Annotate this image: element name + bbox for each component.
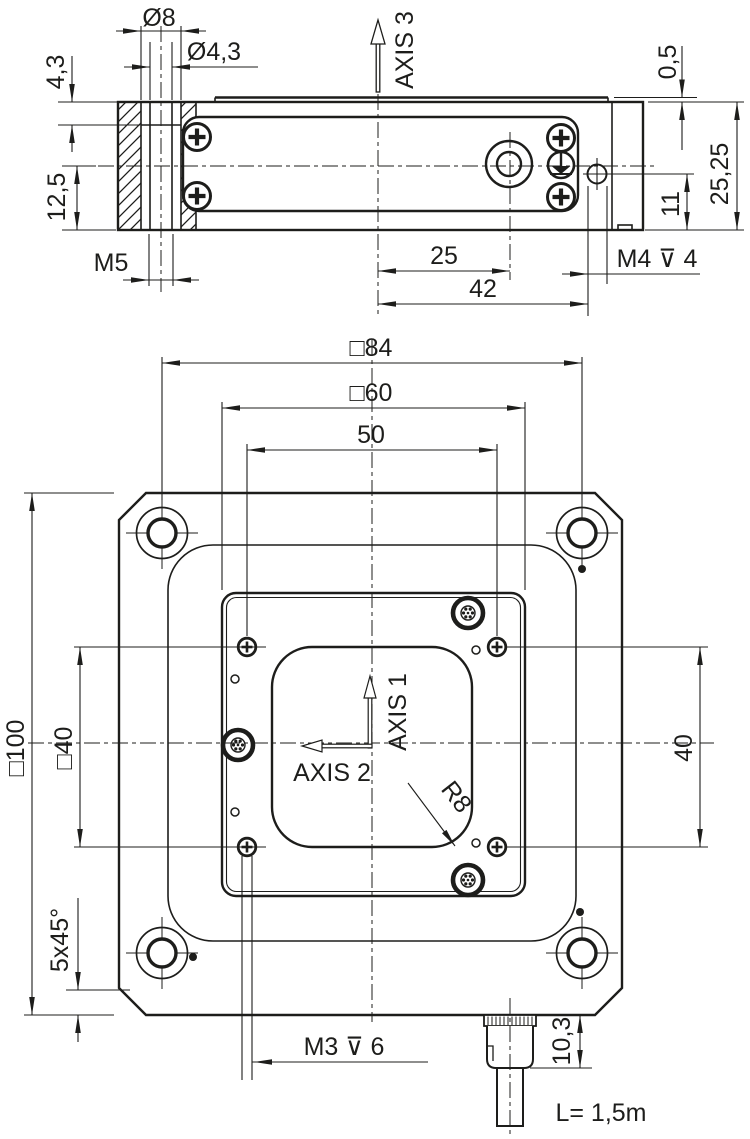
pin-dot	[576, 908, 584, 916]
pin-hole	[231, 808, 239, 816]
pin-hole	[472, 646, 480, 654]
pin-hole	[231, 675, 239, 683]
dim-label-h2525: 25,25	[706, 143, 734, 206]
dim-label-40: 40	[670, 734, 698, 762]
dim-label-m4: M4 ⊽ 4	[617, 245, 698, 273]
axis2-label: AXIS 2	[293, 759, 371, 787]
dim-label-sq60: □60	[350, 379, 393, 407]
drawing-page: AXIS 3 Ø8 Ø4,3 4,3	[0, 0, 750, 1139]
axis3-label: AXIS 3	[391, 11, 419, 89]
screw-torx	[453, 865, 483, 895]
dim-label-sq40: □40	[50, 727, 78, 770]
engineering-drawing: AXIS 3 Ø8 Ø4,3 4,3	[0, 0, 750, 1139]
screw-m3	[488, 838, 506, 856]
dim-label-depth43: 4,3	[42, 55, 70, 90]
screw-m3	[488, 638, 506, 656]
dim-label-chamfer: 5x45°	[46, 908, 74, 972]
screw-phillips	[184, 124, 211, 151]
dim-label-h103: 10,3	[548, 1017, 576, 1066]
pin-dot	[189, 953, 197, 961]
dim-label-42: 42	[469, 275, 497, 303]
screw-torx	[453, 598, 483, 628]
screw-phillips	[184, 183, 211, 210]
pin-hole	[472, 839, 480, 847]
dim-label-m3: M3 ⊽ 6	[304, 1033, 385, 1061]
screw-phillips	[548, 184, 575, 211]
screw-phillips	[548, 125, 575, 152]
screw-torx	[223, 730, 253, 760]
dim-label-off11: 11	[657, 191, 685, 217]
cable-length-label: L= 1,5m	[555, 1099, 646, 1127]
dim-label-sq100: □100	[2, 720, 30, 777]
axis1-label: AXIS 1	[384, 673, 412, 751]
pin-dot	[578, 565, 586, 573]
dim-label-sq84: □84	[350, 334, 393, 362]
dim-label-dia8: Ø8	[142, 4, 175, 32]
dim-label-h125: 12,5	[43, 173, 71, 222]
countersink-symbol	[548, 152, 574, 178]
dim-label-25: 25	[430, 242, 458, 270]
center-bore-inner	[497, 152, 521, 176]
dim-label-dia43: Ø4,3	[187, 38, 241, 66]
dim-label-50: 50	[357, 421, 385, 449]
dim-label-m5: M5	[94, 249, 129, 277]
dim-label-step05: 0,5	[654, 45, 682, 80]
